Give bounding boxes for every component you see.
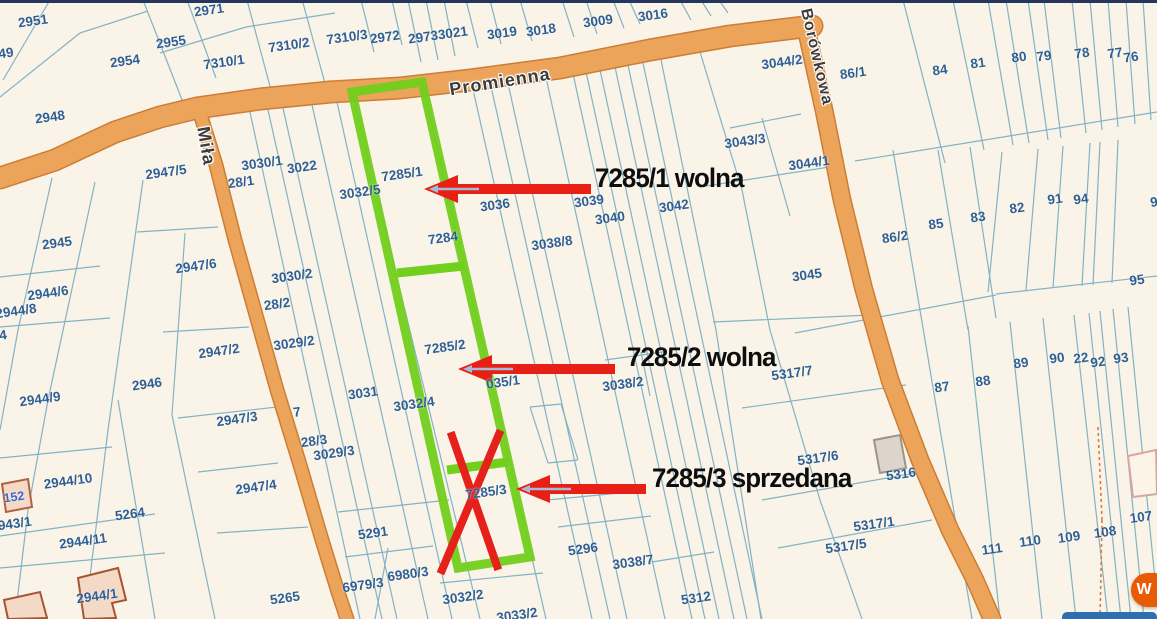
parcel-boundary-line: [953, 0, 984, 150]
building-footprint: [4, 592, 47, 619]
parcel-boundary-line: [1093, 142, 1100, 285]
parcel-label-88: 88: [975, 373, 992, 390]
parcel-boundary-line: [548, 460, 578, 463]
parcel-label-84: 84: [932, 62, 949, 79]
parcel-boundary-line: [0, 447, 112, 458]
parcel-boundary-line: [613, 0, 624, 28]
parcel-boundary-line: [970, 147, 996, 318]
parcel-label-22: 22: [1073, 350, 1090, 367]
parcel-boundary-line: [137, 227, 218, 232]
parcel-boundary-line: [1090, 0, 1102, 130]
road-edge-borowkowa: [806, 28, 992, 619]
parcel-boundary-line: [1044, 0, 1061, 138]
parcel-boundary-line: [713, 315, 871, 322]
parcel-boundary-line: [0, 266, 100, 277]
parcel-boundary-line: [855, 112, 1157, 161]
parcel-label-77: 77: [1107, 45, 1124, 62]
parcel-label-89: 89: [1013, 355, 1030, 372]
parcel-boundary-line: [345, 546, 433, 557]
parcel-label-93: 93: [1113, 350, 1130, 367]
road-promienna: [0, 26, 812, 178]
parcel-label-9: 9: [1149, 194, 1157, 210]
parcel-boundary-line: [530, 407, 548, 463]
parcel-label-79: 79: [1036, 48, 1053, 65]
parcel-label-108: 108: [1093, 523, 1117, 541]
map-top-border: [0, 0, 1157, 3]
parcel-label-4: 4: [0, 327, 8, 343]
parcel-label-80: 80: [1011, 49, 1028, 66]
parcel-boundary-line: [0, 330, 18, 430]
parcel-boundary-line: [742, 385, 906, 408]
parcel-label-83: 83: [970, 209, 987, 226]
fab-label: W: [1136, 581, 1151, 599]
parcel-boundary-line: [562, 0, 574, 37]
parcel-boundary-line: [1072, 0, 1086, 133]
highlight-divider-bar: [397, 266, 464, 273]
parcel-boundary-line: [820, 500, 862, 619]
parcel-label-49: 49: [0, 45, 14, 62]
map-graphics: [0, 0, 1157, 619]
parcel-boundary-line: [172, 415, 215, 619]
parcel-label-109: 109: [1057, 528, 1081, 546]
parcel-label-85: 85: [928, 216, 945, 233]
parcel-label-95: 95: [1129, 272, 1146, 289]
parcel-boundary-line: [730, 114, 801, 128]
parcel-boundary-line: [988, 152, 1002, 292]
parcel-boundary-line: [1026, 149, 1038, 290]
parcel-label-78: 78: [1074, 45, 1091, 62]
parcel-boundary-line: [246, 13, 335, 27]
parcel-boundary-line: [530, 404, 561, 407]
parcel-boundary-line: [466, 0, 478, 48]
parcel-boundary-line: [338, 500, 449, 512]
parcel-boundary-line: [1108, 0, 1118, 127]
parcel-boundary-line: [80, 11, 148, 33]
parcel-boundary-line: [488, 73, 610, 619]
parcel-boundary-line: [163, 327, 249, 332]
parcel-boundary-line: [1082, 143, 1090, 286]
parcel-boundary-line: [1112, 140, 1118, 283]
map-fab-button[interactable]: W: [1131, 573, 1157, 607]
parcel-boundary-line: [143, 0, 186, 110]
highlight-divider-bar: [447, 462, 508, 470]
parcel-boundary-line: [903, 0, 945, 163]
parcel-label-81: 81: [970, 55, 987, 72]
parcel-boundary-line: [0, 318, 110, 327]
parcel-boundary-line: [440, 573, 543, 583]
parcel-boundary-line: [0, 553, 165, 568]
parcel-boundary-line: [597, 56, 719, 619]
parcel-boundary-line: [198, 463, 278, 472]
parcel-boundary-line: [1028, 0, 1048, 140]
parcel-label-107: 107: [1129, 508, 1153, 526]
parcel-label-94: 94: [1073, 191, 1090, 208]
parcel-boundary-line: [217, 527, 308, 533]
parcel-label-92: 92: [1090, 354, 1107, 371]
parcel-boundary-line: [281, 99, 397, 619]
arrow-7285-2-label: 7285/2 wolna: [627, 342, 775, 373]
parcel-boundary-line: [762, 118, 790, 216]
house-number-badge: 152: [3, 489, 26, 506]
parcel-label-111: 111: [981, 540, 1004, 558]
parcel-boundary-line: [652, 552, 714, 562]
parcel-label-76: 76: [1123, 49, 1140, 66]
parcel-label-91: 91: [1047, 191, 1064, 208]
dashed-line: [1098, 427, 1102, 520]
arrow-7285-3-label: 7285/3 sprzedana: [652, 463, 851, 494]
parcel-label-90: 90: [1049, 350, 1066, 367]
parcel-boundary-line: [742, 190, 770, 330]
parcel-label-110: 110: [1018, 532, 1042, 550]
parcel-label-87: 87: [934, 379, 951, 396]
parcel-label-7: 7: [292, 404, 302, 420]
parcel-boundary-line: [1143, 0, 1151, 120]
arrow-7285-1-label: 7285/1 wolna: [595, 163, 743, 194]
map-canvas[interactable]: 2951297129552954497310/17310/27310/32972…: [0, 0, 1157, 619]
parcel-label-82: 82: [1009, 200, 1026, 217]
parcel-boundary-line: [561, 404, 578, 460]
parcel-boundary-line: [1053, 146, 1063, 288]
bottom-bar[interactable]: [1062, 612, 1157, 619]
building-footprint: [1128, 450, 1157, 497]
